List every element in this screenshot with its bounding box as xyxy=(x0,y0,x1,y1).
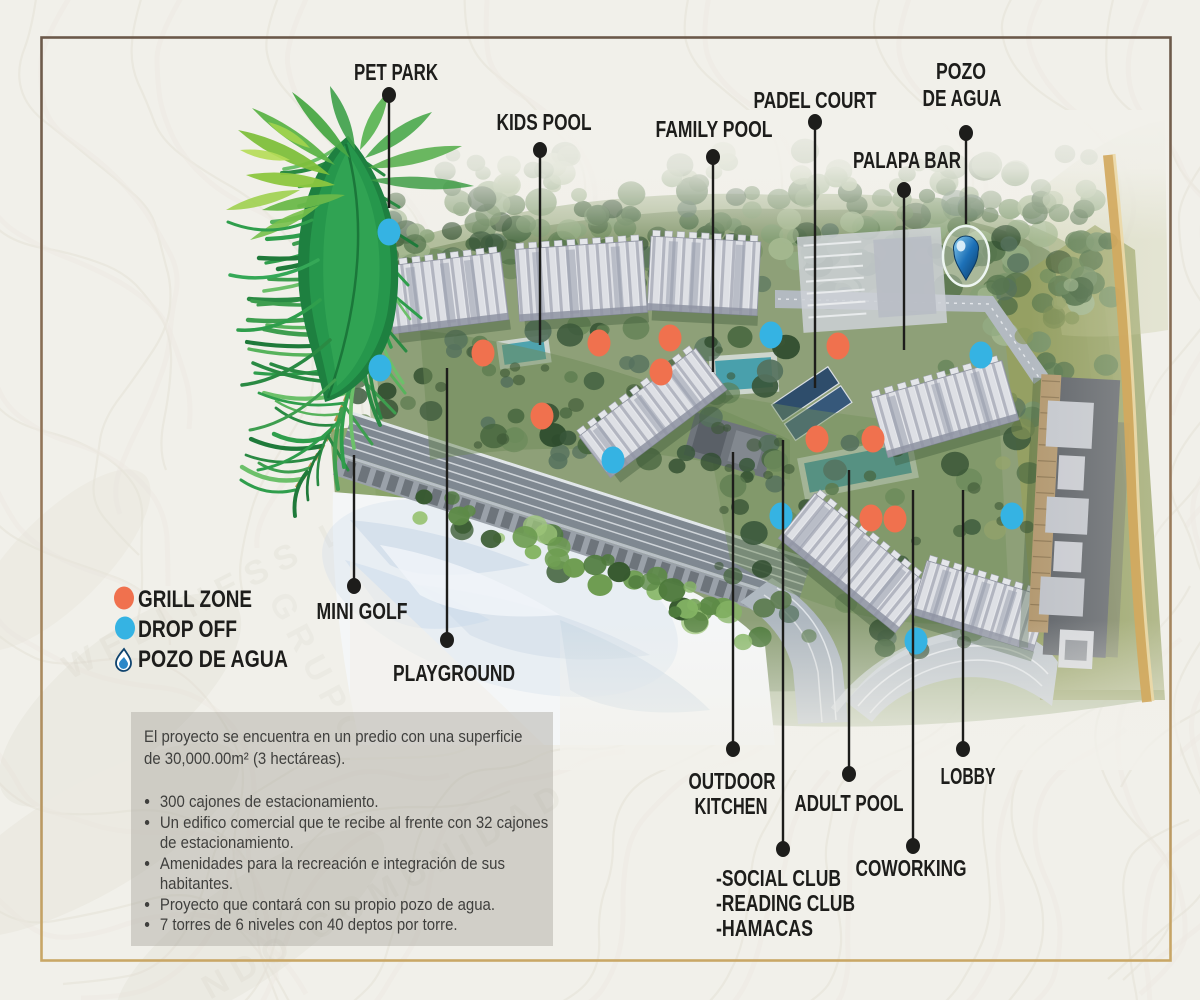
svg-text:PLAYGROUND: PLAYGROUND xyxy=(393,660,515,686)
svg-text:COWORKING: COWORKING xyxy=(856,855,967,881)
svg-text:DROP OFF: DROP OFF xyxy=(138,616,237,643)
svg-text:DE AGUA: DE AGUA xyxy=(923,85,1002,111)
svg-text:POZO DE AGUA: POZO DE AGUA xyxy=(138,646,288,673)
svg-text:FAMILY POOL: FAMILY POOL xyxy=(656,116,773,142)
svg-text:PET PARK: PET PARK xyxy=(354,59,438,85)
svg-text:GRILL ZONE: GRILL ZONE xyxy=(138,586,252,613)
svg-text:PADEL COURT: PADEL COURT xyxy=(754,87,877,113)
svg-text:-READING CLUB: -READING CLUB xyxy=(716,890,855,916)
svg-text:ADULT POOL: ADULT POOL xyxy=(795,790,904,816)
svg-text:-HAMACAS: -HAMACAS xyxy=(716,915,813,941)
svg-text:POZO: POZO xyxy=(936,58,986,84)
svg-text:OUTDOOR: OUTDOOR xyxy=(689,768,776,794)
svg-text:KITCHEN: KITCHEN xyxy=(695,793,768,819)
svg-text:KIDS POOL: KIDS POOL xyxy=(497,109,592,135)
svg-text:MINI GOLF: MINI GOLF xyxy=(317,598,408,624)
svg-text:-SOCIAL CLUB: -SOCIAL CLUB xyxy=(716,865,841,891)
svg-text:PALAPA BAR: PALAPA BAR xyxy=(853,147,961,173)
svg-text:LOBBY: LOBBY xyxy=(941,763,996,789)
